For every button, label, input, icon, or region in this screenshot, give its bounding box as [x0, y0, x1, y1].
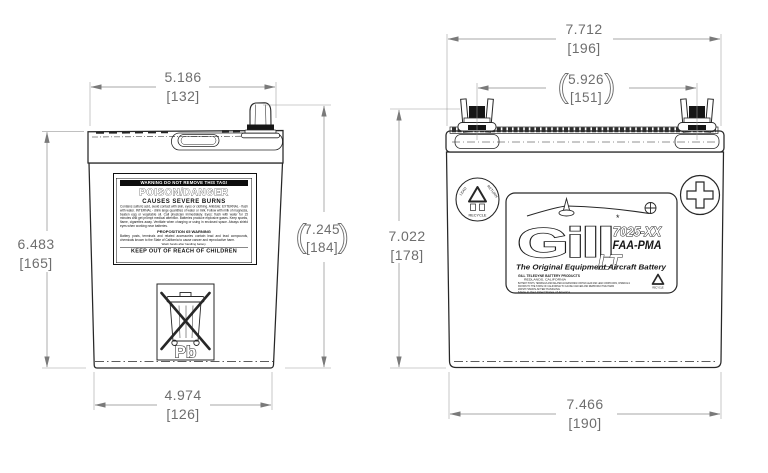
dim-value-inches: 7.466: [566, 396, 603, 412]
dim-value-mm: [196]: [567, 40, 600, 56]
fine-print-line: BATTERY POSTS, TERMINALS AND RELATED ACC…: [518, 282, 630, 285]
pb-recycle-marking: Pb: [157, 284, 214, 362]
trademark-asterisk: *: [616, 213, 620, 223]
svg-text:POISON/DANGER: POISON/DANGER: [139, 187, 228, 198]
paren-close: ): [605, 68, 616, 104]
fine-print-line: REDLANDS, CALIFORNIA: [524, 277, 566, 281]
screw-icon: [645, 203, 656, 214]
battery-front-view: LEAD RETURN RECYCLE Gill LT: [446, 99, 724, 368]
prop65-body-text: Battery posts, terminals and related acc…: [120, 235, 248, 243]
dimension-side-bottom-width: 4.974 [126]: [94, 372, 272, 422]
prop65-title: PROPOSITION 65 WARNING: [120, 230, 248, 235]
dim-value-inches: 6.483: [17, 236, 54, 252]
dim-value-mm: [184]: [306, 240, 338, 255]
paren-close: ): [338, 218, 349, 254]
dim-value-mm: [151]: [570, 90, 602, 105]
side-vent-post: [242, 103, 280, 138]
gill-product-label: Gill LT * 7025-XX FAA-PMA The Original E…: [506, 193, 677, 294]
dim-value-mm: [165]: [19, 255, 52, 271]
dimension-side-height: 6.483 [165]: [17, 131, 86, 368]
fine-print-line: KNOWN TO THE STATE OF CALIFORNIA TO CAUS…: [518, 285, 614, 288]
dim-value-inches: 7.022: [388, 228, 425, 244]
lead-recycle-badge: LEAD RETURN RECYCLE: [456, 178, 499, 221]
made-in-line: Made in the United States of America: [518, 290, 570, 294]
dim-value-inches: 5.186: [164, 69, 201, 85]
dimension-front-bottom-width: 7.466 [190]: [449, 372, 721, 431]
warning-body-text: Contains sulfuric acid, avoid contact wi…: [120, 205, 248, 228]
warning-footer: KEEP OUT OF REACH OF CHILDREN: [120, 247, 248, 254]
dim-value-mm: [178]: [390, 247, 423, 263]
model-number: 7025-XX: [613, 225, 662, 239]
battery-dimension-drawing: Pb: [0, 0, 768, 473]
badge-word-recycle: RECYCLE: [469, 214, 487, 218]
mini-recycle-caption: RECYCLE: [652, 287, 664, 290]
dim-value-mm: [126]: [166, 406, 199, 422]
paren-open: (: [558, 68, 569, 104]
dimension-side-top-width: 5.186 [132]: [90, 69, 276, 126]
dim-value-inches: 4.974: [164, 387, 201, 403]
wash-hands-note: Wash hands after handling battery.: [120, 243, 248, 246]
poison-warning-label: WARNING DO NOT REMOVE THIS TAG! POISON/D…: [113, 173, 257, 265]
dim-value-inches: 7.245: [304, 222, 340, 237]
label-tagline: The Original Equipment Aircraft Battery: [516, 265, 667, 272]
pb-lead-symbol-text: Pb: [175, 343, 197, 362]
dim-value-inches: 7.712: [565, 21, 602, 37]
warning-subtitle: CAUSES SEVERE BURNS: [120, 198, 248, 204]
certification-text: FAA-PMA: [613, 240, 662, 252]
poison-danger-outline-text: POISON/DANGER: [122, 186, 247, 198]
dim-value-mm: [132]: [166, 88, 199, 104]
dim-value-inches: 5.926: [568, 72, 604, 87]
dim-value-mm: [190]: [568, 415, 601, 431]
warning-label-inner-border: WARNING DO NOT REMOVE THIS TAG! POISON/D…: [116, 178, 252, 263]
